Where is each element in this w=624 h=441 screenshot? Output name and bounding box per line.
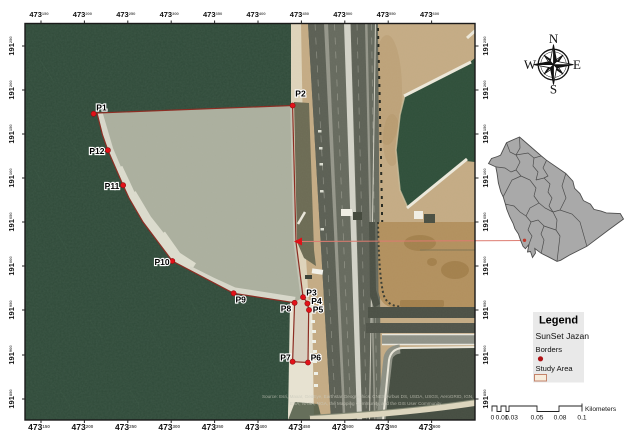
svg-text:0.08: 0.08 [554,415,567,422]
svg-text:P5: P5 [313,305,324,315]
svg-text:P6: P6 [311,352,322,362]
svg-text:E: E [573,57,581,72]
svg-text:ESA, NASA, NGA, the Mapping Co: ESA, NASA, NGA, the Mapping Community, a… [290,401,442,406]
svg-text:P9: P9 [235,295,246,305]
svg-text:0: 0 [491,415,495,422]
svg-text:Legend: Legend [539,315,578,327]
svg-text:Study Area: Study Area [536,364,574,373]
svg-text:Source: Esri, Maxar, GeoEye, E: Source: Esri, Maxar, GeoEye, Earthstar G… [262,394,483,399]
svg-text:SunSet Jazan: SunSet Jazan [536,331,590,341]
svg-text:0.1: 0.1 [577,415,586,422]
svg-text:Borders: Borders [536,345,563,354]
svg-text:Kilometers: Kilometers [585,406,617,413]
svg-text:P11: P11 [105,181,120,191]
svg-text:P10: P10 [154,257,169,267]
svg-text:P8: P8 [281,304,292,314]
svg-text:N: N [549,31,559,46]
svg-text:0.05: 0.05 [531,415,544,422]
svg-text:W: W [524,57,537,72]
svg-text:P12: P12 [89,146,104,156]
svg-text:P2: P2 [295,89,306,99]
svg-text:P7: P7 [280,353,291,363]
svg-text:P1: P1 [96,103,107,113]
svg-text:S: S [550,82,557,97]
svg-text:0.03: 0.03 [505,415,518,422]
